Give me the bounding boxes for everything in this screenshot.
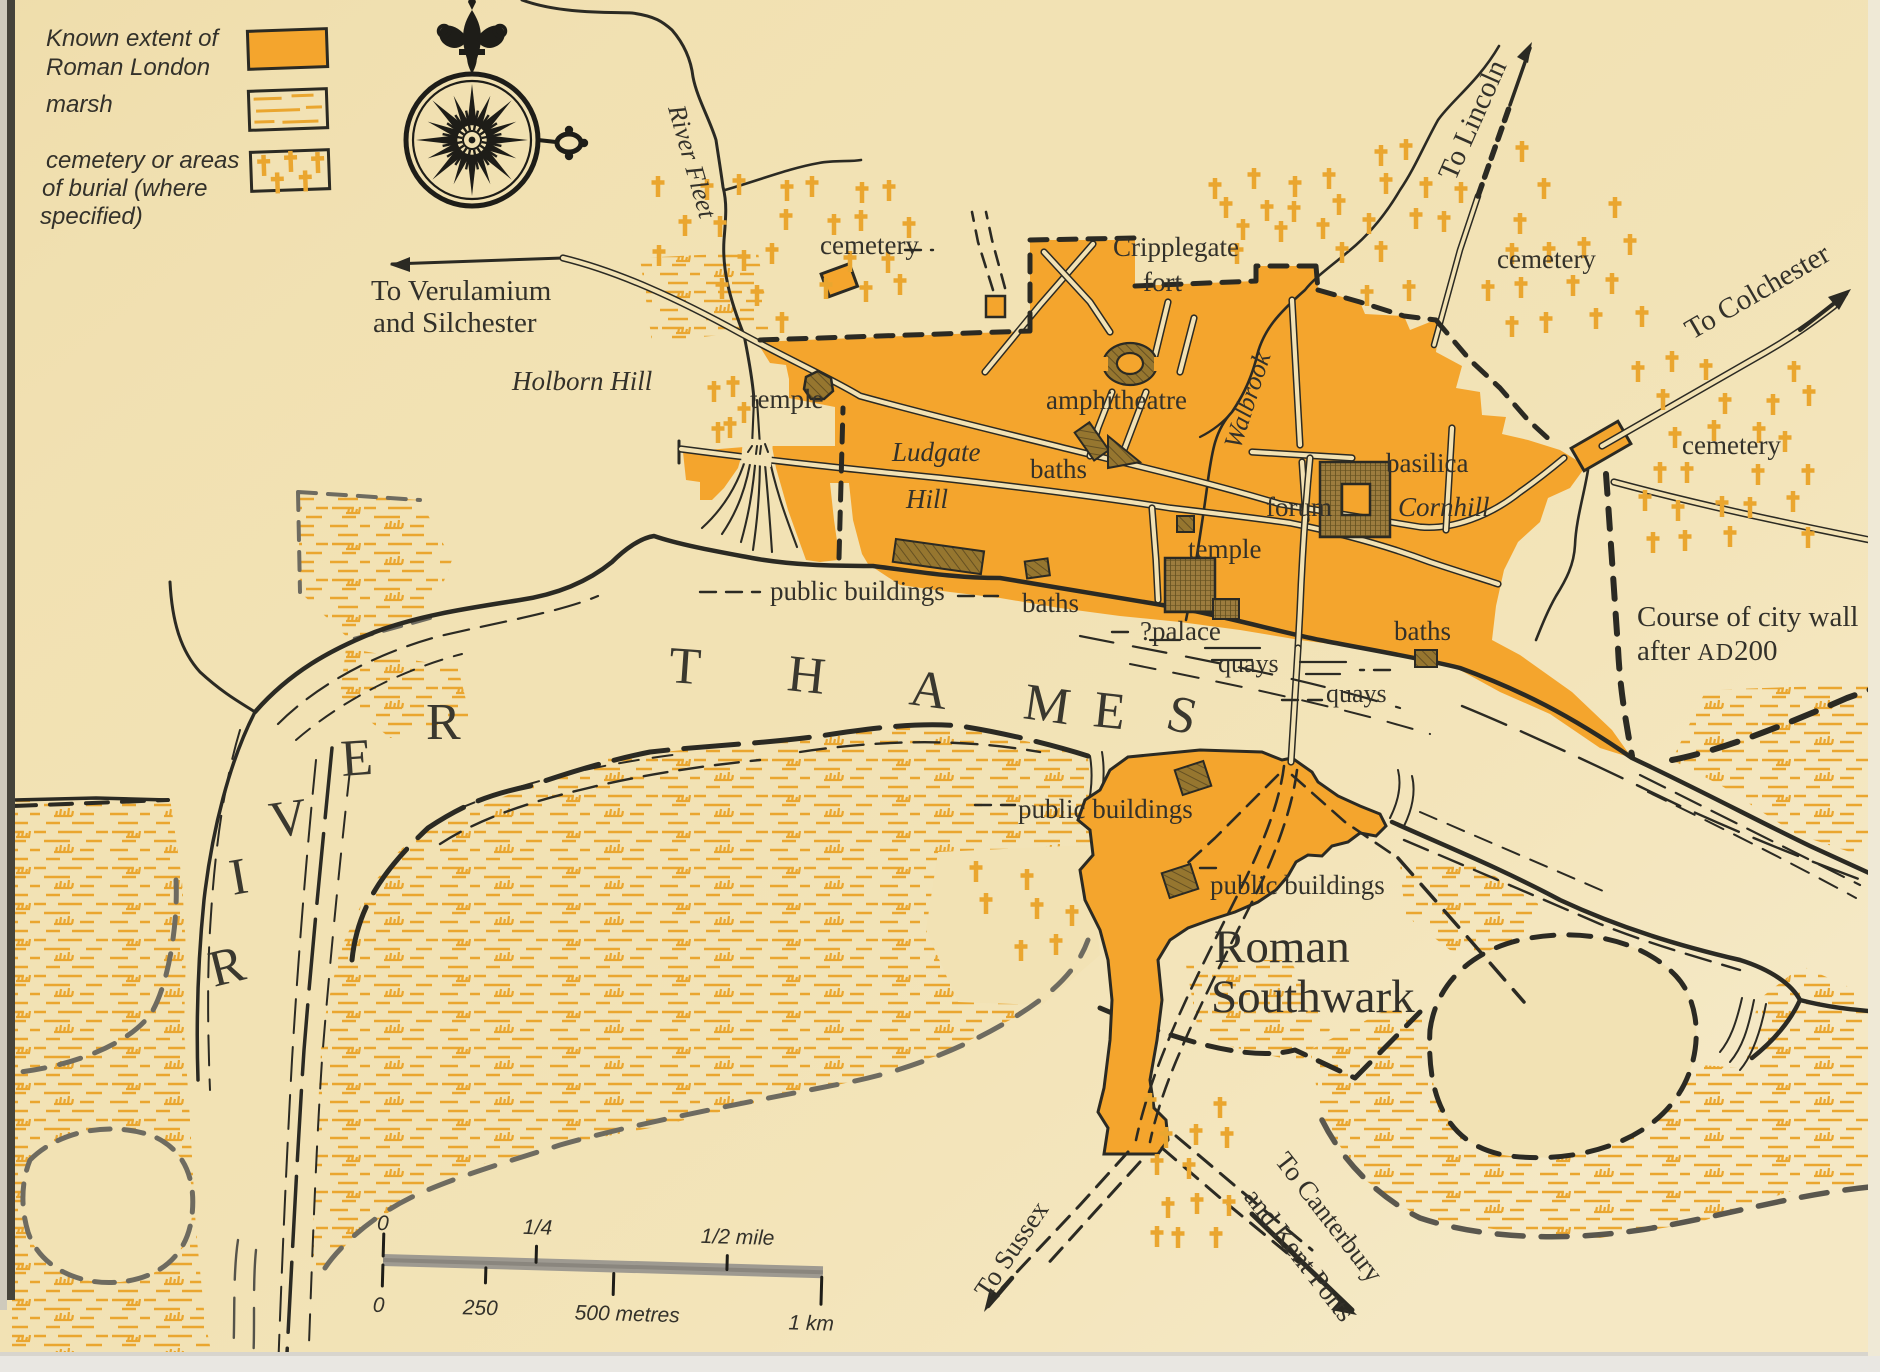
svg-text:basilica: basilica (1386, 448, 1468, 478)
svg-text:Cornhill: Cornhill (1398, 492, 1490, 522)
svg-text:M: M (1020, 673, 1074, 736)
svg-text:Holborn Hill: Holborn Hill (511, 366, 652, 396)
svg-text:cemetery: cemetery (820, 230, 919, 260)
svg-text:250: 250 (461, 1296, 498, 1320)
svg-text:To Verulamium: To Verulamium (371, 275, 552, 307)
svg-text:Cripplegate: Cripplegate (1113, 232, 1239, 262)
svg-text:V: V (266, 788, 311, 850)
svg-text:amphitheatre: amphitheatre (1046, 385, 1187, 415)
svg-text:quays: quays (1218, 649, 1279, 678)
svg-text:public buildings: public buildings (1018, 794, 1193, 824)
svg-text:Hill: Hill (905, 484, 948, 514)
svg-text:temple: temple (1188, 534, 1261, 564)
svg-text:fort: fort (1143, 267, 1182, 297)
svg-text:?palace: ?palace (1140, 616, 1221, 646)
svg-text:temple: temple (750, 384, 823, 414)
svg-text:1/2 mile: 1/2 mile (701, 1225, 775, 1250)
svg-text:Known extent of: Known extent of (46, 25, 220, 52)
svg-text:baths: baths (1394, 616, 1451, 646)
svg-text:500 metres: 500 metres (574, 1301, 680, 1327)
svg-text:public buildings: public buildings (770, 576, 945, 606)
svg-text:cemetery or areas: cemetery or areas (46, 147, 239, 174)
svg-text:quays: quays (1326, 679, 1387, 708)
svg-text:specified): specified) (40, 203, 143, 230)
svg-text:Ludgate: Ludgate (891, 437, 981, 467)
svg-text:after AD200: after AD200 (1637, 635, 1778, 667)
svg-text:marsh: marsh (46, 91, 113, 118)
svg-text:and Silchester: and Silchester (373, 307, 537, 339)
svg-text:forum: forum (1266, 492, 1332, 522)
svg-text:cemetery: cemetery (1497, 244, 1596, 274)
svg-text:baths: baths (1030, 454, 1087, 484)
svg-text:Roman: Roman (1214, 921, 1350, 973)
svg-text:1 km: 1 km (788, 1311, 834, 1335)
svg-text:R: R (426, 694, 461, 751)
svg-text:0: 0 (377, 1212, 390, 1235)
svg-text:E: E (1091, 681, 1129, 741)
svg-text:E: E (339, 729, 375, 788)
svg-text:H: H (785, 645, 828, 706)
svg-text:1/4: 1/4 (523, 1216, 553, 1240)
svg-text:T: T (667, 637, 703, 696)
svg-text:public buildings: public buildings (1210, 870, 1385, 900)
svg-text:0: 0 (372, 1294, 385, 1317)
svg-text:Roman London: Roman London (46, 54, 210, 81)
svg-text:of burial (where: of burial (where (42, 175, 207, 202)
svg-text:baths: baths (1022, 588, 1079, 618)
svg-text:Course of city wall: Course of city wall (1637, 601, 1858, 633)
svg-text:Southwark: Southwark (1211, 971, 1415, 1023)
svg-text:cemetery: cemetery (1682, 430, 1781, 460)
